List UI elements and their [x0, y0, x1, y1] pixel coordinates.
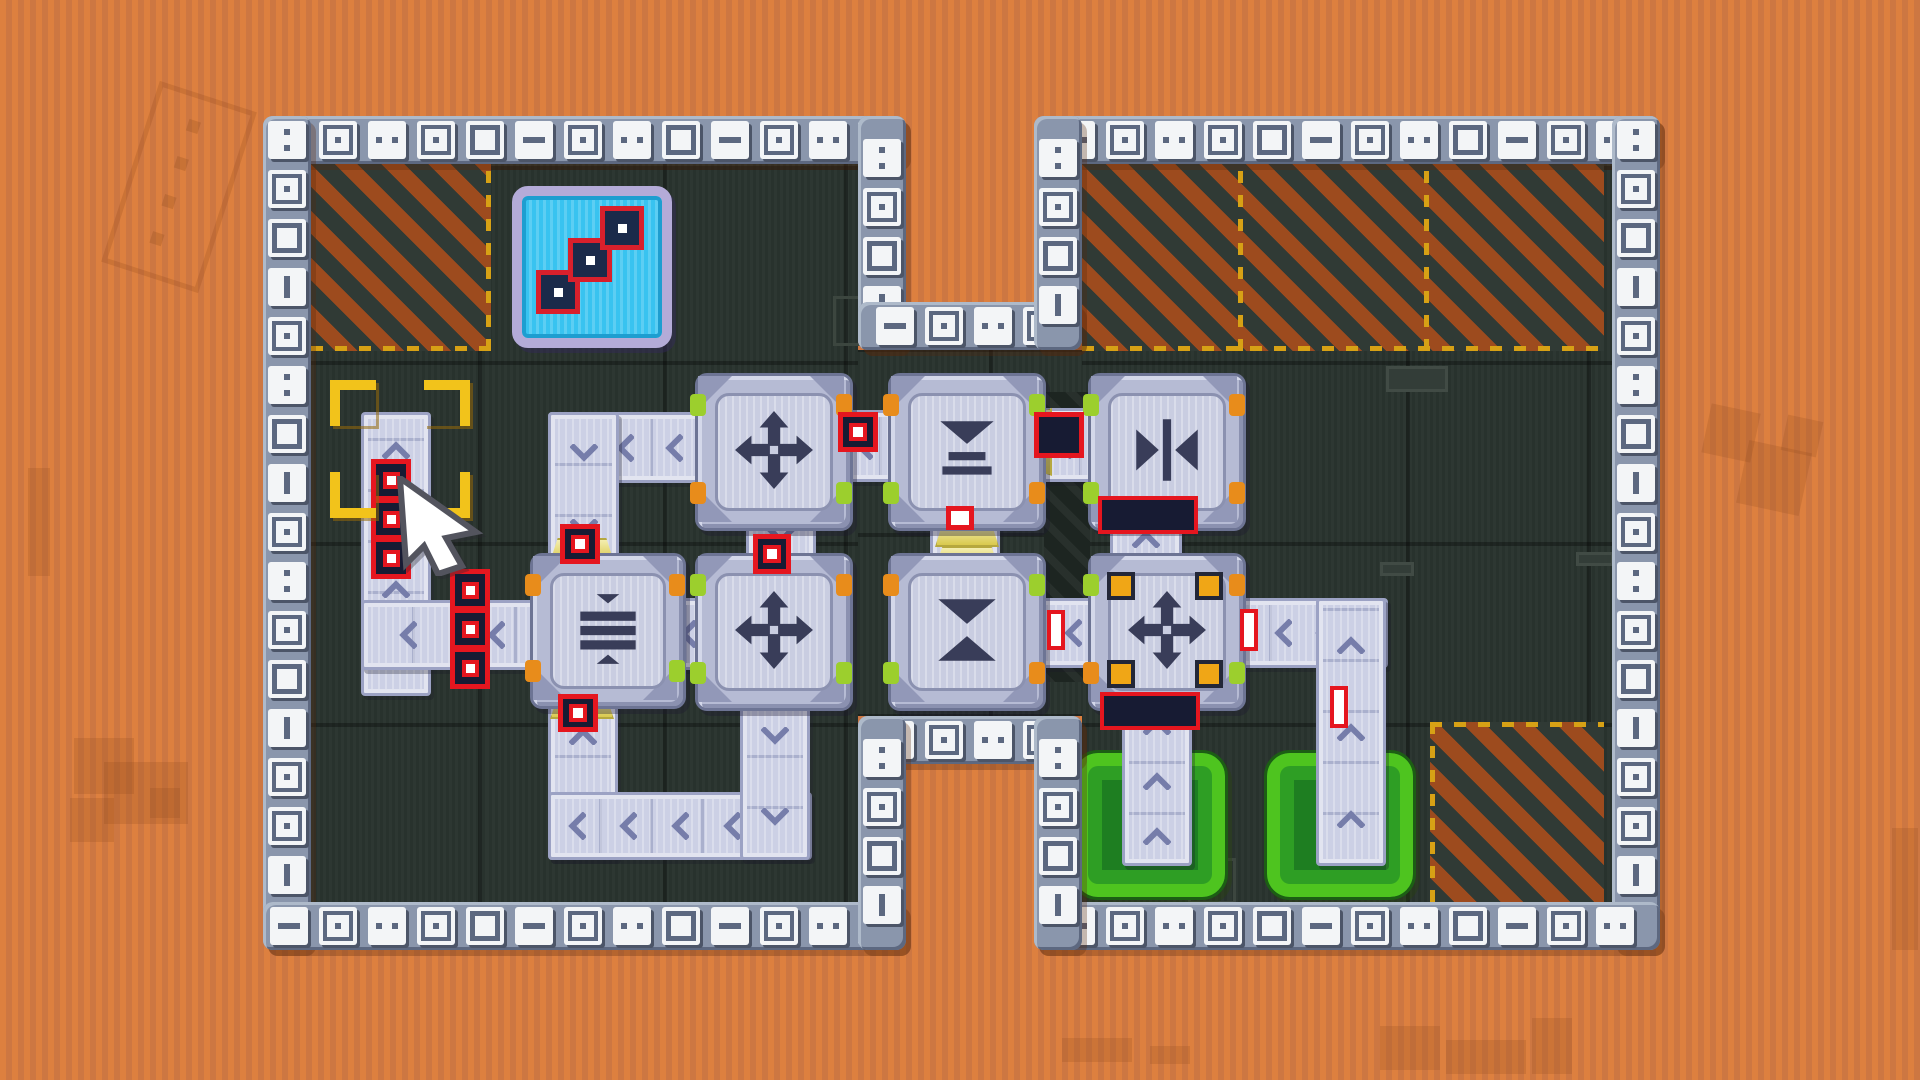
item-thin[interactable]	[1330, 686, 1348, 728]
wall-tile	[1204, 121, 1242, 159]
floor-panel-mark	[1576, 552, 1614, 566]
wall-tile	[368, 121, 406, 159]
wall-tile	[466, 121, 504, 159]
item-box[interactable]	[838, 412, 878, 452]
wall-tile	[1617, 709, 1655, 747]
wall-tile	[863, 739, 901, 777]
background-watermark-bar	[28, 468, 50, 576]
wall-tile	[1039, 237, 1077, 275]
hazard-zone	[1082, 164, 1604, 351]
machine-move-arrows[interactable]	[1088, 553, 1246, 711]
machine-nub-orange	[525, 574, 541, 596]
wall-tile	[515, 121, 553, 159]
machine-plate	[908, 393, 1026, 511]
machine-nub-orange	[690, 482, 706, 504]
wall-tile	[1617, 219, 1655, 257]
background-watermark-square	[1150, 1046, 1190, 1064]
wall-tile	[1617, 268, 1655, 306]
machine-nub-green	[1083, 482, 1099, 504]
wall-tile	[1039, 886, 1077, 924]
belt-chevron-up-icon	[1337, 810, 1365, 828]
wall-tile	[1302, 121, 1340, 159]
wall-tile	[760, 907, 798, 945]
squeeze-horizontal-icon	[1126, 409, 1208, 495]
background-watermark-square	[1446, 1040, 1526, 1074]
wall-tile	[863, 886, 901, 924]
belt-chevron-left-icon	[666, 817, 694, 835]
machine-plate	[908, 573, 1026, 691]
belt-chevron-left-icon	[394, 626, 422, 644]
floor-panel-mark	[1380, 562, 1414, 576]
machine-nub-orange	[525, 660, 541, 682]
target-sign-item	[600, 206, 644, 250]
wall-tile	[268, 366, 306, 404]
item-bigdark[interactable]	[1034, 412, 1084, 458]
item-bar[interactable]	[1100, 692, 1200, 730]
wall-tile	[1253, 121, 1291, 159]
wall-tile	[1039, 139, 1077, 177]
game-stage	[0, 0, 1920, 1080]
wall-tile	[268, 121, 306, 159]
background-watermark-bar	[1892, 828, 1918, 950]
wall-tile	[1204, 907, 1242, 945]
wall-tile	[809, 907, 847, 945]
item-thin[interactable]	[1047, 610, 1065, 650]
hazard-dashed-edge	[1430, 722, 1435, 902]
machine-lock-square	[1195, 572, 1223, 600]
wall-tile	[268, 807, 306, 845]
machine-nub-orange	[1229, 574, 1245, 596]
wall-tile	[1617, 464, 1655, 502]
wall-tile	[268, 170, 306, 208]
wall-tile	[1106, 121, 1144, 159]
wall-tile	[1106, 907, 1144, 945]
conveyor-belt-down[interactable]	[740, 692, 810, 860]
wall-tile	[1617, 807, 1655, 845]
background-watermark-square	[1380, 1026, 1440, 1070]
machine-nub-green	[690, 662, 706, 684]
belt-chevron-up-icon	[382, 580, 410, 598]
belt-chevron-left-icon	[1269, 624, 1297, 642]
wall-tile	[613, 121, 651, 159]
machine-nub-orange	[1083, 662, 1099, 684]
selection-bracket-arm	[424, 380, 470, 426]
move-arrows-icon	[733, 409, 815, 495]
hazard-dashed-edge	[1082, 346, 1604, 351]
wall-tile	[268, 709, 306, 747]
wall-tile	[1400, 907, 1438, 945]
hazard-zone	[311, 164, 491, 351]
belt-chevron-down-icon	[570, 444, 598, 462]
conveyor-belt-up[interactable]	[1316, 598, 1386, 866]
machine-nub-orange	[1029, 662, 1045, 684]
wall-tile	[925, 721, 963, 759]
machine-nub-orange	[883, 574, 899, 596]
wall-tile	[809, 121, 847, 159]
wall-tile	[1039, 286, 1077, 324]
wall-tile	[1155, 121, 1193, 159]
wall-tile	[1400, 121, 1438, 159]
machine-nub-green	[1083, 574, 1099, 596]
wall-tile	[760, 121, 798, 159]
machine-nub-orange	[1229, 394, 1245, 416]
belt-chevron-left-icon	[660, 439, 688, 457]
machine-nub-orange	[836, 574, 852, 596]
machine-nub-green	[1229, 662, 1245, 684]
item-box	[450, 608, 490, 650]
hazard-zone	[1430, 722, 1604, 902]
wall-tile	[1039, 188, 1077, 226]
machine-lock-square	[1107, 572, 1135, 600]
wall-tile	[1547, 121, 1585, 159]
wall-tile	[974, 307, 1012, 345]
wall-tile	[711, 121, 749, 159]
wall-tile	[368, 907, 406, 945]
selection-bracket	[330, 472, 366, 508]
hazard-dashed-edge	[1430, 722, 1604, 727]
machine-squeeze-vertical[interactable]	[888, 553, 1046, 711]
background-watermark-ruler-outline	[101, 81, 257, 293]
wall-tile	[974, 721, 1012, 759]
wall-tile	[268, 758, 306, 796]
wall-tile	[1617, 513, 1655, 551]
wall-tile	[1039, 788, 1077, 826]
belt-chevron-up-icon	[1337, 636, 1365, 654]
item-box[interactable]	[558, 694, 598, 732]
machine-lock-square	[1195, 660, 1223, 688]
watermark-dot	[174, 156, 189, 171]
wall-tile	[319, 907, 357, 945]
cursor-pointer-icon	[396, 476, 486, 576]
wall-tile	[1596, 907, 1634, 945]
wall-tile	[863, 837, 901, 875]
wall-tile	[564, 907, 602, 945]
belt-chevron-down-icon	[761, 727, 789, 745]
wall-tile	[268, 856, 306, 894]
wall-tile	[1302, 907, 1340, 945]
machine-plate	[550, 573, 666, 689]
wall-tile	[1617, 758, 1655, 796]
wall-tile	[466, 907, 504, 945]
wall-tile	[1617, 317, 1655, 355]
belt-chevron-up-icon	[1143, 772, 1171, 790]
background-watermark-square	[1062, 1038, 1132, 1062]
wall-tile	[268, 415, 306, 453]
machine-nub-green	[690, 394, 706, 416]
wall-tile	[1617, 660, 1655, 698]
wall-tile	[417, 907, 455, 945]
wall-tile	[1449, 121, 1487, 159]
background-watermark-square	[1781, 415, 1824, 458]
machine-nub-orange	[669, 574, 685, 596]
item-box[interactable]	[753, 534, 791, 574]
machine-nub-orange	[1229, 482, 1245, 504]
wall-tile	[1155, 907, 1193, 945]
machine-nub-green	[836, 662, 852, 684]
wall-tile	[268, 611, 306, 649]
wall-tile	[1039, 739, 1077, 777]
wall-tile	[319, 121, 357, 159]
wall-tile	[268, 562, 306, 600]
wall-tile	[863, 237, 901, 275]
item-box	[450, 647, 490, 689]
machine-nub-green	[1029, 574, 1045, 596]
machine-nub-green	[883, 662, 899, 684]
background-watermark-square	[150, 788, 180, 818]
belt-chevron-down-icon	[761, 808, 789, 826]
wall-tile	[925, 307, 963, 345]
wall-tile	[515, 907, 553, 945]
wall-tile	[1617, 856, 1655, 894]
squeeze-vertical-icon	[926, 589, 1008, 675]
watermark-dot	[149, 232, 164, 247]
hazard-dashed-edge	[311, 346, 491, 351]
machine-press-stack[interactable]	[530, 553, 686, 709]
wall-tile	[270, 907, 308, 945]
wall-tile	[1617, 562, 1655, 600]
wall-tile	[417, 121, 455, 159]
wall-tile	[268, 660, 306, 698]
machine-nub-orange	[1029, 482, 1045, 504]
wall-tile	[613, 907, 651, 945]
hazard-dashed-edge	[486, 164, 491, 351]
wall-tile	[1617, 415, 1655, 453]
wall-tile	[1351, 121, 1389, 159]
belt-chevron-left-icon	[614, 817, 642, 835]
item-small[interactable]	[946, 506, 974, 530]
wall-tile	[1253, 907, 1291, 945]
machine-lock-square	[1107, 660, 1135, 688]
wall-tile	[268, 513, 306, 551]
machine-nub-green	[883, 482, 899, 504]
watermark-dot	[161, 194, 176, 209]
wall-tile	[1039, 837, 1077, 875]
wall-tile	[1617, 611, 1655, 649]
selection-bracket-arm	[330, 472, 376, 518]
machine-nub-green	[690, 574, 706, 596]
machine-plate	[715, 573, 833, 691]
selection-bracket	[330, 380, 366, 416]
hazard-dashed-separator	[1238, 164, 1243, 351]
background-watermark-square	[1532, 1018, 1572, 1074]
wall-tile	[711, 907, 749, 945]
watermark-dot	[186, 119, 201, 134]
wall-tile	[268, 219, 306, 257]
wall-tile	[876, 307, 914, 345]
press-down-icon	[926, 409, 1008, 495]
item-box[interactable]	[560, 524, 600, 564]
wall-tile	[863, 788, 901, 826]
wall-tile	[1498, 907, 1536, 945]
wall-tile	[863, 188, 901, 226]
wall-tile	[1449, 907, 1487, 945]
wall-tile	[268, 317, 306, 355]
wall-tile	[1547, 907, 1585, 945]
machine-move-arrows[interactable]	[695, 553, 853, 711]
wall-tile	[1617, 121, 1655, 159]
machine-nub-green	[669, 660, 685, 682]
wall-tile	[268, 268, 306, 306]
wall-tile	[564, 121, 602, 159]
item-bar[interactable]	[1098, 496, 1198, 534]
machine-nub-orange	[883, 394, 899, 416]
item-thin[interactable]	[1240, 609, 1258, 651]
move-arrows-icon	[733, 589, 815, 675]
machine-nub-green	[1083, 394, 1099, 416]
machine-plate	[1108, 393, 1226, 511]
wall-tile	[268, 464, 306, 502]
belt-chevron-up-icon	[1143, 827, 1171, 845]
wall-tile	[1617, 170, 1655, 208]
selection-bracket-arm	[330, 380, 376, 426]
floor-panel-mark	[1386, 366, 1448, 392]
background-watermark-square	[70, 798, 114, 842]
machine-nub-green	[836, 482, 852, 504]
wall-tile	[1498, 121, 1536, 159]
belt-chevron-left-icon	[563, 817, 591, 835]
target-sign[interactable]	[512, 186, 672, 348]
wall-tile	[863, 139, 901, 177]
wall-tile	[1351, 907, 1389, 945]
wall-tile	[662, 907, 700, 945]
machine-plate	[715, 393, 833, 511]
selection-bracket	[424, 380, 460, 416]
item-stack-of-boxes[interactable]	[450, 572, 490, 689]
wall-tile	[1617, 366, 1655, 404]
belt-chevron-up-icon	[382, 441, 410, 459]
wall-tile	[662, 121, 700, 159]
press-stack-icon	[567, 588, 649, 674]
hazard-dashed-separator	[1424, 164, 1429, 351]
machine-move-arrows[interactable]	[695, 373, 853, 531]
